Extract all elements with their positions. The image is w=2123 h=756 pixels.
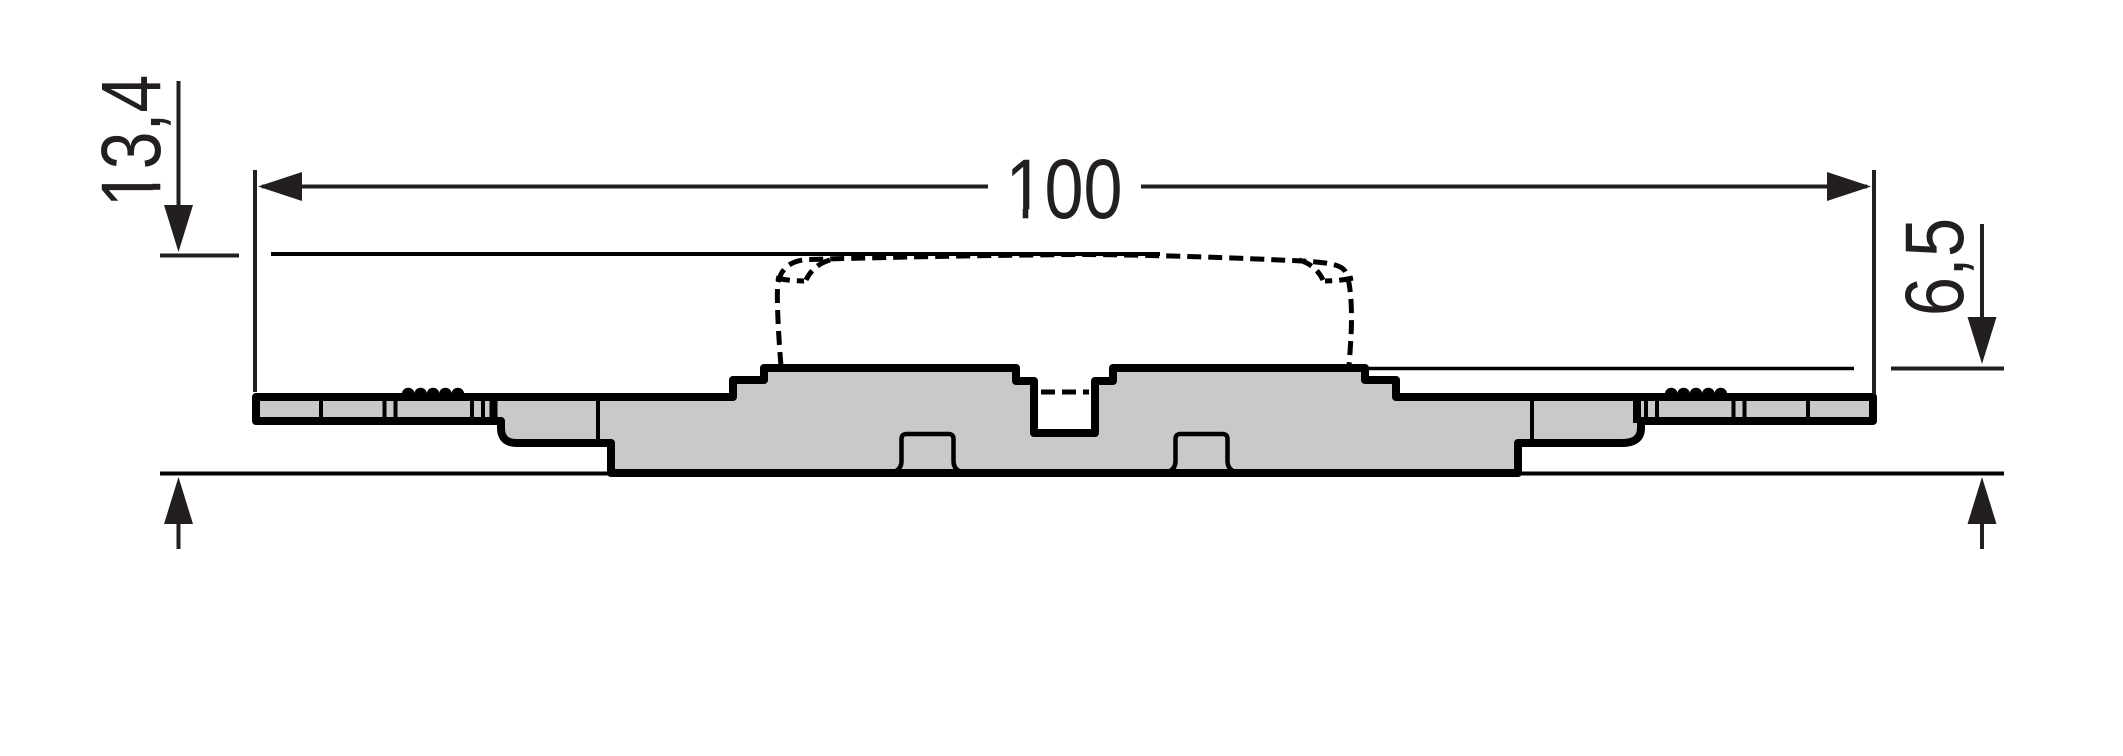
svg-text:13,4: 13,4 bbox=[85, 75, 178, 207]
svg-text:6,5: 6,5 bbox=[1888, 218, 1981, 316]
svg-text:100: 100 bbox=[1005, 143, 1122, 236]
